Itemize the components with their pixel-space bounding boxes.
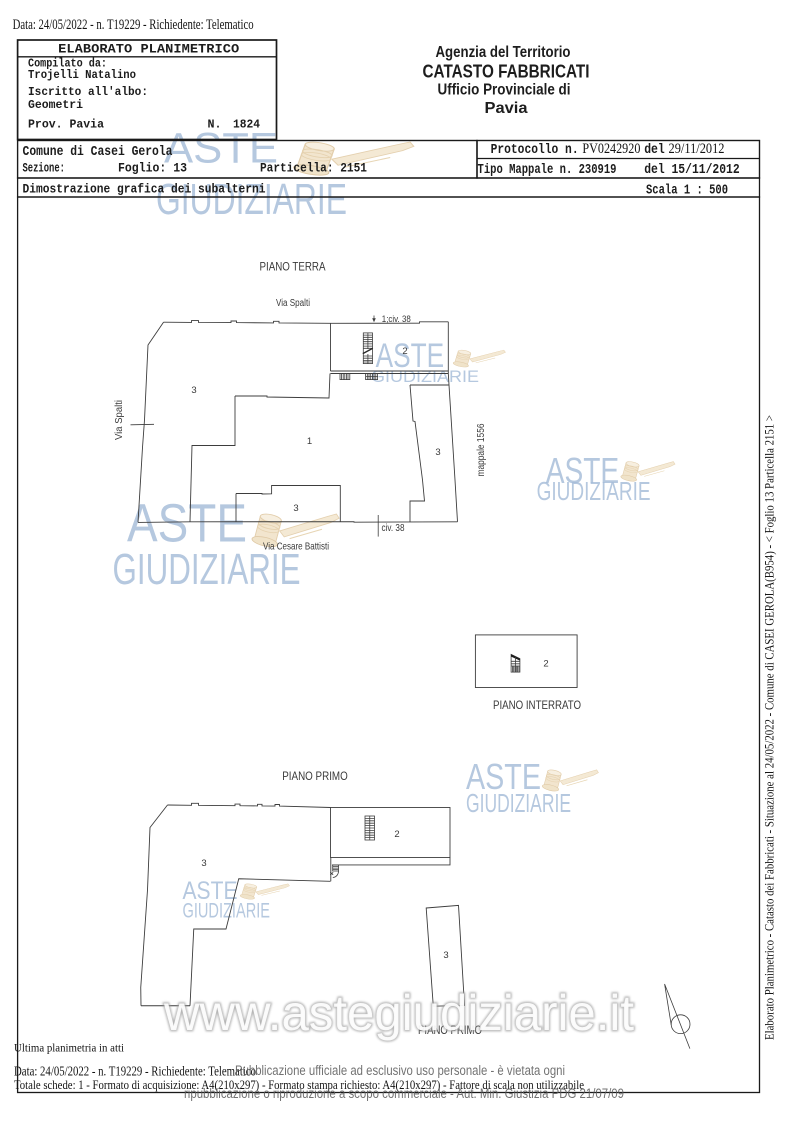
svg-text:Tipo Mappale n. 230919: Tipo Mappale n. 230919 (478, 162, 617, 178)
svg-text:Data: 24/05/2022 - n. T19229 -: Data: 24/05/2022 - n. T19229 - Richieden… (13, 17, 254, 33)
svg-text:PIANO PRIMO: PIANO PRIMO (282, 769, 348, 783)
svg-text:del: del (644, 142, 665, 158)
svg-text:3: 3 (293, 503, 298, 514)
svg-text:ELABORATO PLANIMETRICO: ELABORATO PLANIMETRICO (58, 42, 240, 56)
svg-text:Scala 1 : 500: Scala 1 : 500 (646, 183, 728, 199)
svg-text:1824: 1824 (233, 117, 260, 131)
svg-text:GIUDIZIARIE: GIUDIZIARIE (183, 900, 271, 923)
svg-text:Elaborato Planimetrico - Catas: Elaborato Planimetrico - Catasto dei Fab… (763, 415, 777, 1040)
svg-text:3: 3 (191, 385, 196, 396)
svg-text:Trojelli Natalino: Trojelli Natalino (28, 68, 136, 82)
svg-text:Agenzia del Territorio: Agenzia del Territorio (436, 44, 571, 61)
svg-text:PV0242920: PV0242920 (582, 141, 640, 157)
svg-text:Ultima planimetria in atti: Ultima planimetria in atti (14, 1041, 125, 1055)
svg-text:civ. 38: civ. 38 (382, 522, 405, 534)
svg-text:www.astegiudiziarie.it: www.astegiudiziarie.it (163, 985, 634, 1041)
svg-text:CATASTO FABBRICATI: CATASTO FABBRICATI (423, 61, 590, 82)
svg-text:Via Cesare Battisti: Via Cesare Battisti (263, 541, 329, 553)
svg-text:N.: N. (208, 117, 222, 131)
svg-text:Particella: 2151: Particella: 2151 (260, 161, 367, 176)
svg-text:3: 3 (443, 950, 448, 961)
svg-text:Dimostrazione grafica dei suba: Dimostrazione grafica dei subalterni (23, 182, 266, 197)
svg-text:1: 1 (307, 436, 312, 447)
svg-text:del 15/11/2012: del 15/11/2012 (644, 162, 740, 178)
svg-text:3: 3 (435, 447, 440, 458)
svg-text:Via Spalti: Via Spalti (114, 400, 125, 440)
svg-text:Pavia: Pavia (485, 100, 528, 117)
svg-text:ripubblicazione o riproduzione: ripubblicazione o riproduzione a scopo c… (184, 1086, 624, 1101)
svg-text:Comune di Casei Gerola: Comune di Casei Gerola (23, 144, 173, 160)
svg-text:Ufficio Provinciale di: Ufficio Provinciale di (438, 82, 571, 99)
svg-text:GIUDIZIARIE: GIUDIZIARIE (466, 788, 571, 818)
svg-text:PIANO INTERRATO: PIANO INTERRATO (493, 698, 581, 712)
svg-text:PIANO TERRA: PIANO TERRA (260, 260, 326, 274)
svg-text:Protocollo n.: Protocollo n. (491, 142, 579, 158)
svg-text:Geometri: Geometri (28, 98, 83, 112)
svg-text:Prov. Pavia: Prov. Pavia (28, 117, 104, 131)
svg-text:Foglio: 13: Foglio: 13 (118, 161, 187, 176)
svg-text:Sezione:: Sezione: (23, 161, 66, 176)
svg-text:Via Spalti: Via Spalti (276, 298, 310, 309)
svg-text:mappale 1556: mappale 1556 (476, 423, 487, 476)
svg-text:GIUDIZIARIE: GIUDIZIARIE (371, 367, 479, 386)
svg-text:29/11/2012: 29/11/2012 (669, 141, 725, 157)
svg-text:2: 2 (394, 829, 399, 840)
svg-text:2: 2 (402, 346, 407, 357)
svg-text:Pubblicazione ufficiale ad esc: Pubblicazione ufficiale ad esclusivo uso… (235, 1063, 565, 1078)
svg-text:3: 3 (201, 858, 206, 869)
svg-text:2: 2 (543, 659, 548, 670)
